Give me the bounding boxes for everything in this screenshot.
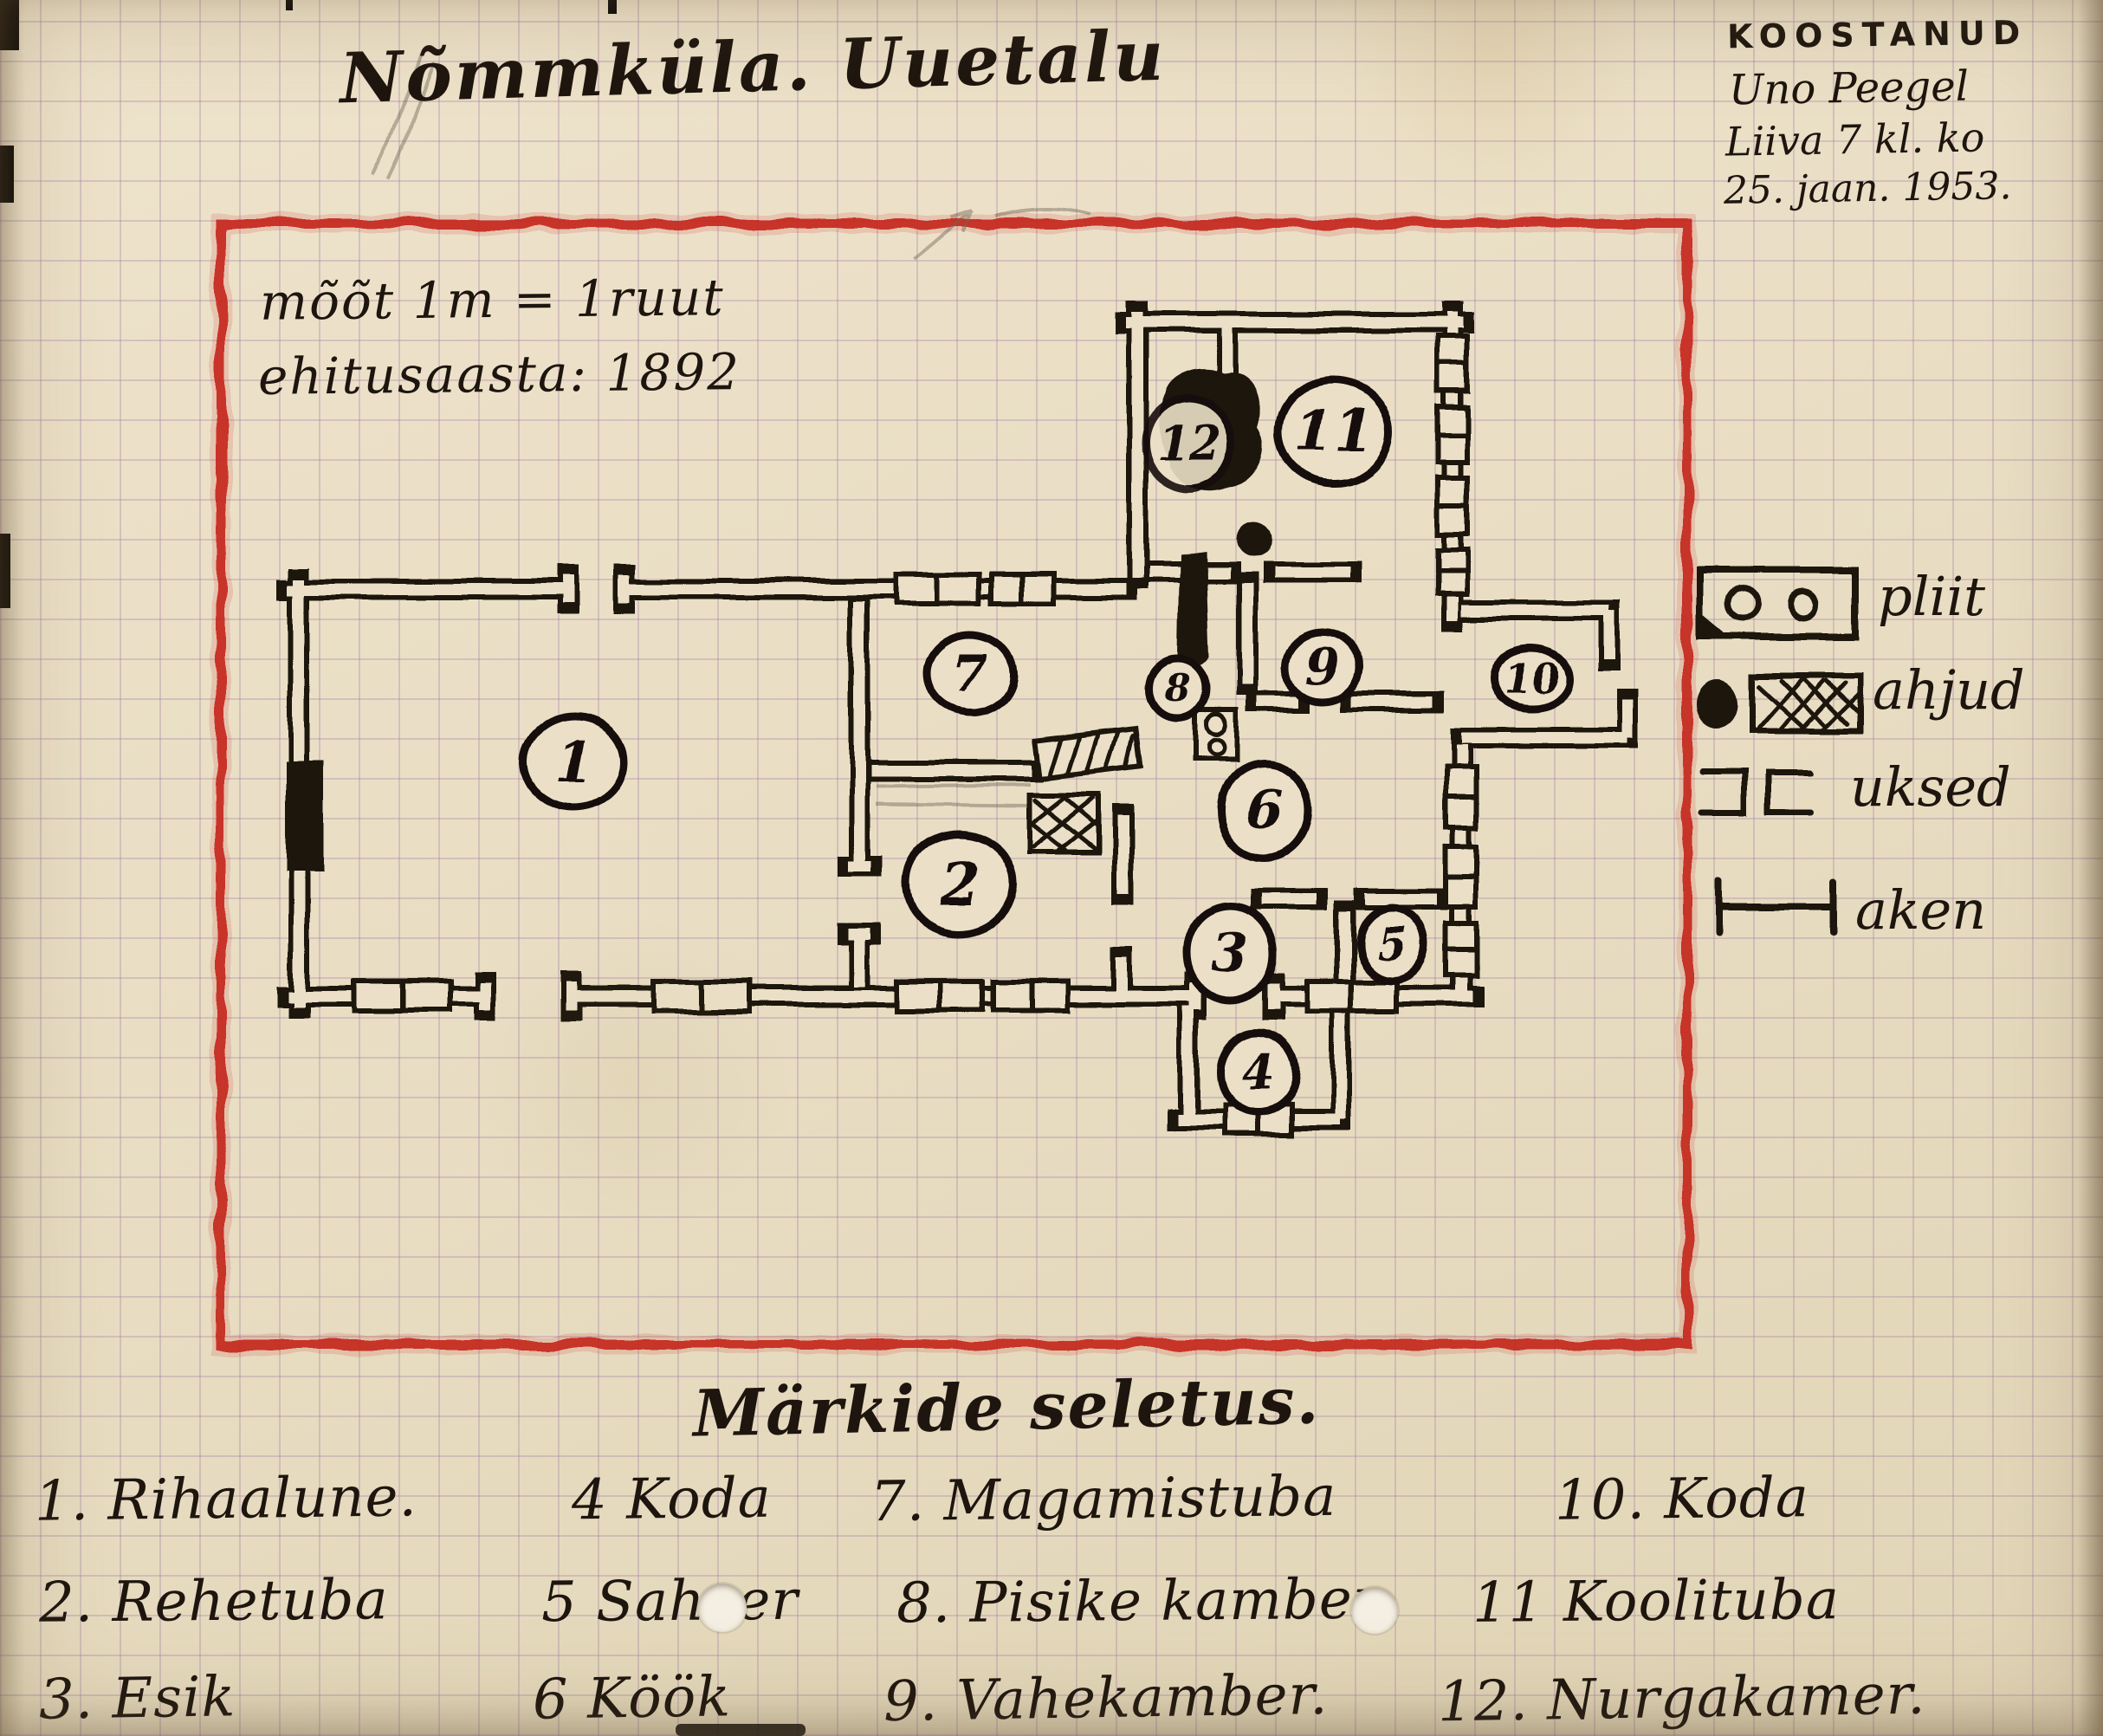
chimney-solid-mark	[286, 761, 324, 871]
stove-symbol	[1699, 570, 1855, 636]
key-item-1: 1. Rihaalune.	[35, 1465, 418, 1533]
key-item-3: 3. Esik	[38, 1665, 236, 1733]
author-date: 25. jaan. 1953.	[1724, 164, 2012, 213]
room-number-1: 1	[555, 730, 594, 795]
oven-marks	[286, 369, 1272, 871]
author-school: Liiva 7 kl. ko	[1725, 113, 1985, 165]
key-item-9: 9. Vahekamber.	[883, 1663, 1328, 1734]
hole-punch-right	[1351, 1587, 1398, 1634]
key-heading: Märkide seletus.	[692, 1364, 1321, 1451]
legend-label-aken: aken	[1855, 878, 1986, 942]
key-item-4: 4 Koda	[572, 1467, 773, 1533]
scale-note: mõõt 1m = 1ruut	[260, 268, 725, 332]
oven-dot	[1237, 521, 1272, 556]
room-number-7: 7	[953, 645, 987, 703]
author-heading: KOOSTANUD	[1727, 14, 2029, 56]
crosshatched-oven	[1029, 795, 1098, 852]
legend-label-uksed: uksed	[1850, 755, 2011, 819]
key-item-10: 10. Koda	[1555, 1466, 1810, 1533]
room-number-3: 3	[1212, 923, 1248, 983]
room-number-6: 6	[1246, 778, 1283, 841]
room-number-11: 11	[1294, 397, 1374, 464]
legend-label-pliit: pliit	[1878, 565, 1985, 628]
oven-symbol	[1696, 676, 1860, 731]
author-name: Uno Peegel	[1729, 62, 1970, 115]
room-number-4: 4	[1241, 1044, 1275, 1101]
room-number-5: 5	[1376, 918, 1407, 971]
legend-label-ahjud: ahjud	[1873, 658, 2025, 722]
key-item-2: 2. Rehetuba	[39, 1568, 389, 1636]
room-number-2: 2	[938, 849, 980, 918]
key-item-12: 12. Nurgakamer.	[1437, 1663, 1926, 1735]
room-number-10: 10	[1504, 655, 1559, 702]
key-item-6: 6 Köök	[532, 1665, 731, 1733]
key-item-8: 8. Pisike kamber	[896, 1568, 1381, 1636]
key-item-11: 11 Koolituba	[1472, 1568, 1841, 1636]
stove-room6	[1195, 710, 1237, 759]
build-year-note: ehitusaasta: 1892	[258, 342, 741, 406]
door-symbol	[1701, 773, 1810, 813]
room-number-8: 8	[1164, 667, 1190, 709]
window-symbol	[1719, 882, 1834, 932]
room-number-9: 9	[1306, 638, 1340, 696]
room-number-12: 12	[1155, 415, 1220, 470]
key-item-5: 5 Sahver	[541, 1569, 799, 1636]
hole-punch-left	[698, 1584, 747, 1632]
ink-streak	[1178, 551, 1209, 667]
key-item-7: 7. Magamistuba	[870, 1465, 1337, 1535]
scanned-floor-plan-page: { "document": { "title": "Nõmmküla. Uuet…	[0, 0, 2103, 1736]
hatched-oven	[1036, 729, 1140, 779]
legend-symbols	[1696, 570, 1860, 932]
